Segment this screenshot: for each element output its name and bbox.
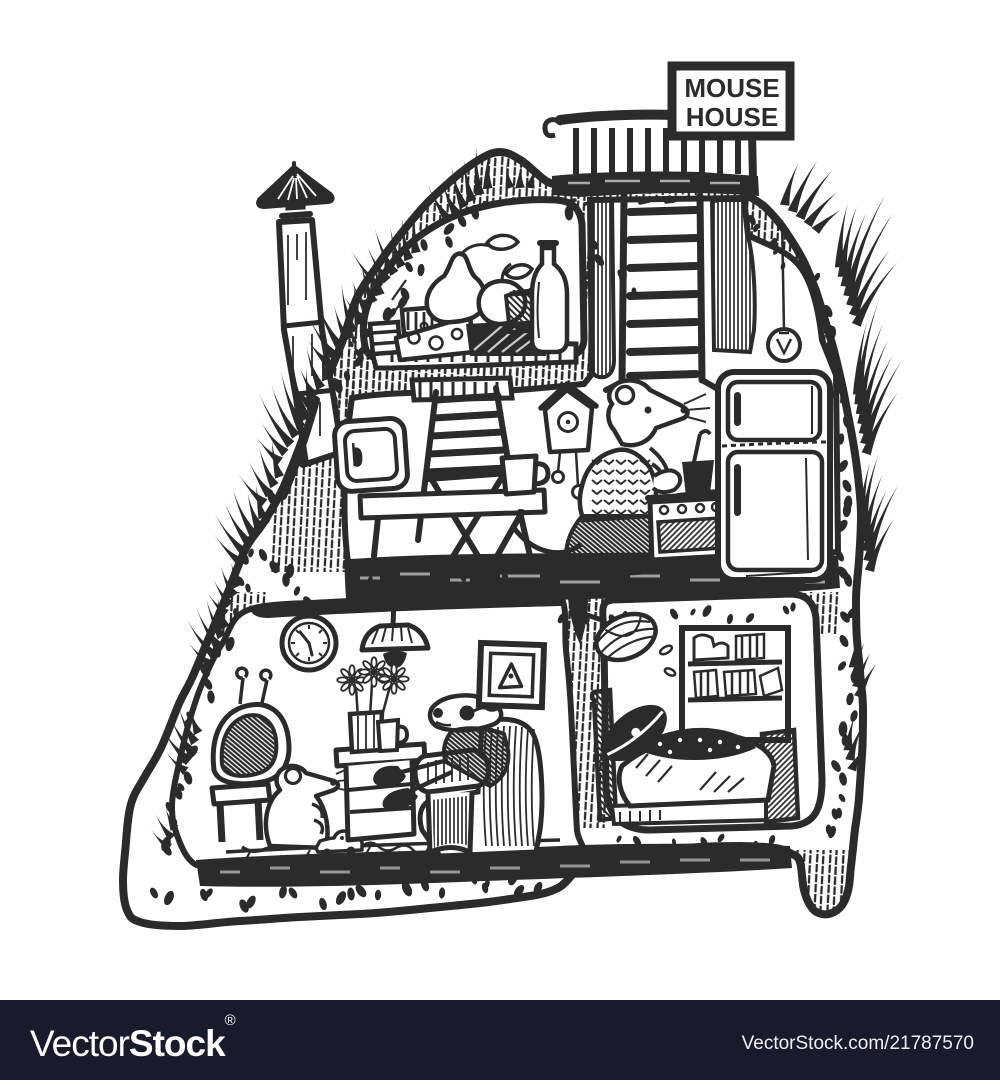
svg-text:HOUSE: HOUSE <box>686 102 778 132</box>
svg-text:MOUSE: MOUSE <box>684 73 779 103</box>
